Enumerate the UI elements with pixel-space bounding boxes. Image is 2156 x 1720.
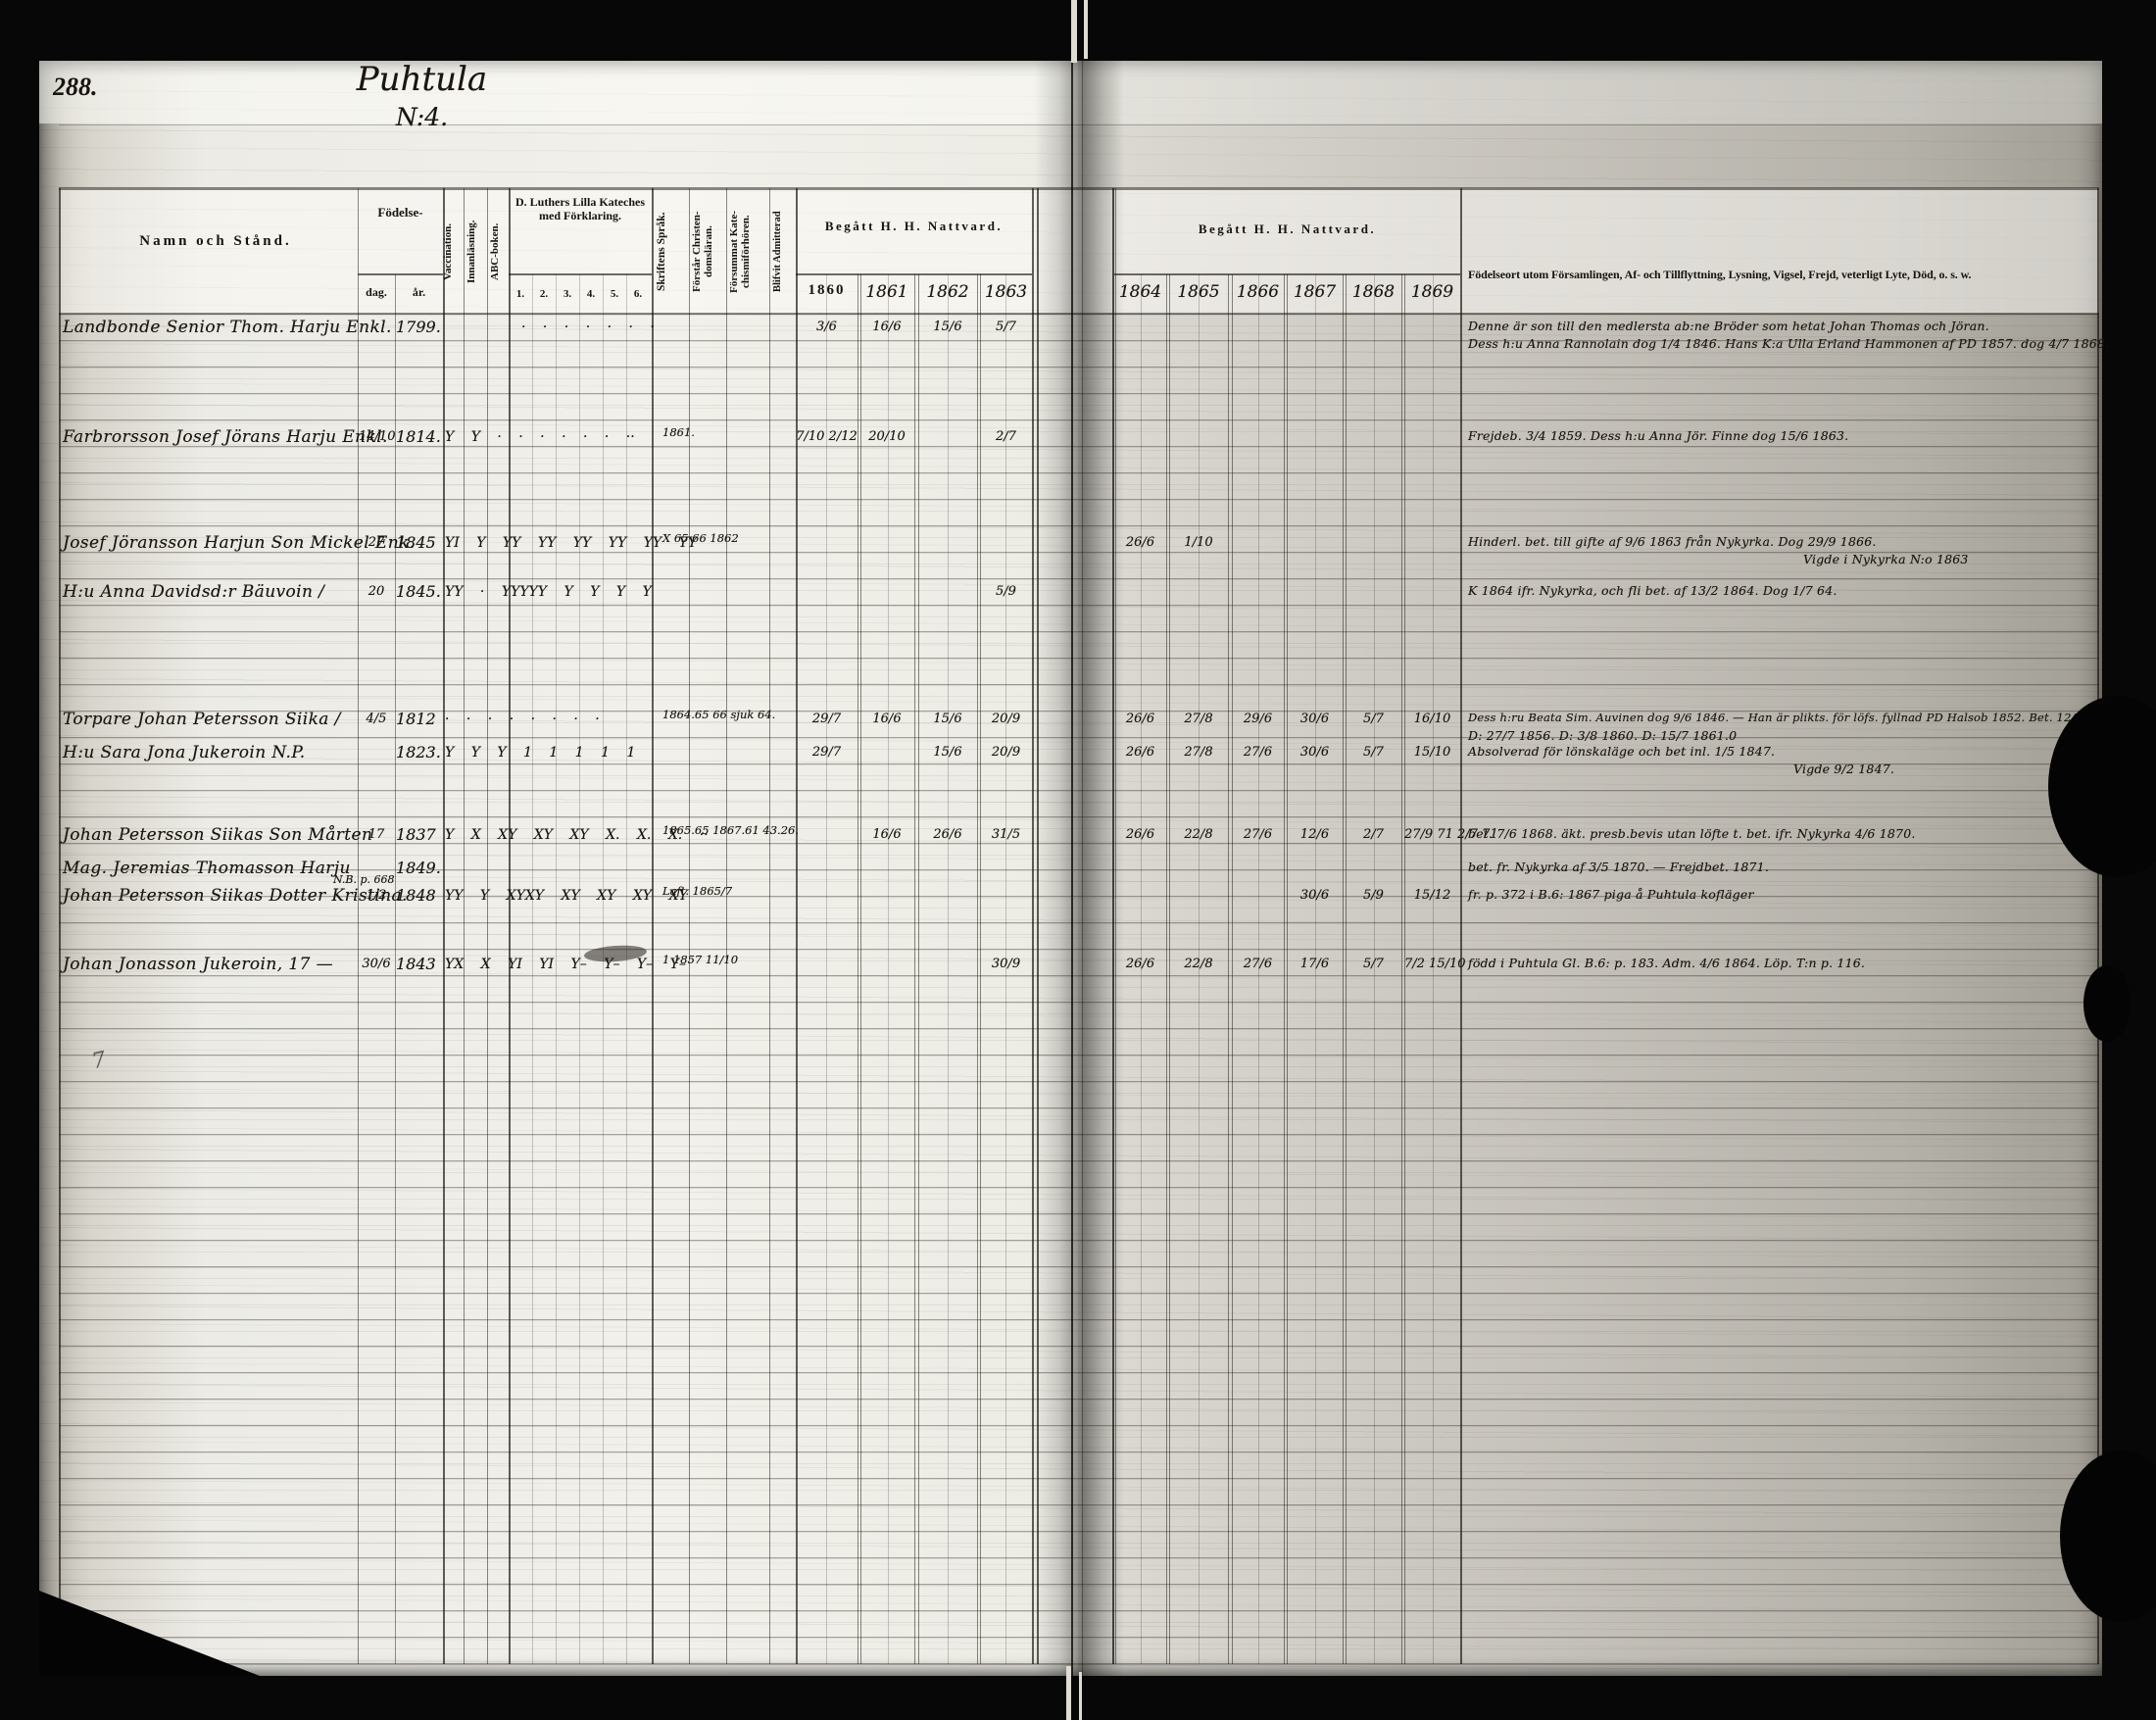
communion-1864-cell: 26/6 <box>1114 712 1166 726</box>
column-header-scripture: Skriftens Språk. <box>656 194 685 310</box>
name-and-status-cell: H:u Sara Jona Jukeroin N.P. <box>63 743 362 762</box>
communion-1867-cell: 30/6 <box>1287 712 1343 726</box>
admission-note-cell: X 65·66 1862 <box>662 532 817 546</box>
page-edge-slit <box>1084 0 1088 59</box>
remark-line-1: född i Puhtula Gl. B.6: p. 183. Adm. 4/6… <box>1468 956 2115 970</box>
fold-crease <box>1071 61 1073 1676</box>
communion-1869-cell: 7/2 15/10 <box>1404 957 1460 971</box>
remark-line-1: Dess h:ru Beata Sim. Auvinen dog 9/6 184… <box>1468 711 2115 724</box>
communion-1860-cell: 29/7 <box>796 745 857 760</box>
year-header-1860: 1860 <box>796 282 857 299</box>
birth-year-cell: 1823. <box>396 743 443 762</box>
page-edge-slit <box>1079 1672 1082 1720</box>
communion-1869-cell: 27/9 71 2/7 71 <box>1404 827 1460 842</box>
communion-1864-cell: 26/6 <box>1114 827 1166 842</box>
year-header-1868: 1868 <box>1346 282 1401 302</box>
remark-line-1: bet. 7/6 1868. äkt. presb.bevis utan löf… <box>1468 826 2115 841</box>
birth-year-cell: 1812 <box>396 710 443 728</box>
catechism-col-6: 6. <box>626 288 650 300</box>
page-edge-slit <box>1066 1666 1071 1720</box>
column-header-admitted: Blifvit Admitterad <box>772 194 795 310</box>
birth-day-cell: 17 <box>359 827 394 842</box>
communion-1862-cell: 26/6 <box>918 827 977 842</box>
year-header-1861: 1861 <box>859 282 914 302</box>
communion-1865-cell: 22/8 <box>1169 957 1228 971</box>
communion-1865-cell: 27/8 <box>1169 712 1228 726</box>
name-and-status-cell: Johan Petersson Siikas Son Mårten <box>63 825 362 845</box>
communion-1863-cell: 30/9 <box>980 957 1032 971</box>
remark-line-1: bet. fr. Nykyrka af 3/5 1870. — Frejdbet… <box>1468 860 2115 874</box>
communion-1868-cell: 5/7 <box>1346 745 1401 760</box>
communion-1864-cell: 26/6 <box>1114 745 1166 760</box>
communion-1866-cell: 29/6 <box>1232 712 1284 726</box>
name-and-status-cell: Mag. Jeremias Thomasson Harju <box>63 859 362 878</box>
remark-line-2: D: 27/7 1856. D: 3/8 1860. D: 15/7 1861.… <box>1468 728 2115 743</box>
year-header-1869: 1869 <box>1404 282 1460 302</box>
communion-1868-cell: 2/7 <box>1346 827 1401 842</box>
birth-day-cell: 4/5 <box>359 712 394 726</box>
communion-1869-cell: 15/12 <box>1404 888 1460 903</box>
birth-subheader-line <box>358 273 443 275</box>
admission-note-cell: Laft. 1865/7 <box>662 885 817 899</box>
years-left-subheader-line <box>796 273 1032 275</box>
communion-1863-cell: 20/9 <box>980 712 1032 726</box>
admission-note-cell: 1864.65 66 sjuk 64. <box>662 709 817 722</box>
remark-line-1: Denne är son till den medlersta ab:ne Br… <box>1468 319 2115 333</box>
communion-1861-cell: 16/6 <box>859 712 914 726</box>
communion-1868-cell: 5/7 <box>1346 957 1401 971</box>
year-header-1866: 1866 <box>1232 282 1284 302</box>
catechism-col-1: 1. <box>509 288 532 300</box>
paper-sheet: 288. Puhtula N:4. 7 Namn och Stånd. Föde… <box>39 61 2102 1676</box>
communion-1867-cell: 12/6 <box>1287 827 1343 842</box>
year-header-1862: 1862 <box>918 282 977 302</box>
communion-1861-cell: 16/6 <box>859 319 914 334</box>
column-header-understands: Förstår Christen-domsläran. <box>692 194 725 310</box>
catechism-col-4: 4. <box>579 288 603 300</box>
page-edge-slit <box>1071 0 1077 63</box>
column-header-birth-day: dag. <box>358 286 395 300</box>
birth-day-cell: 1/2 <box>359 888 394 903</box>
name-and-status-cell: Farbrorsson Josef Jörans Harju Enkl. <box>63 427 362 447</box>
communion-1863-cell: 5/9 <box>980 584 1032 599</box>
birth-year-cell: 1799. <box>396 318 443 336</box>
birth-year-cell: 1843 <box>396 955 443 973</box>
page-subtitle: N:4. <box>331 104 513 132</box>
communion-1869-cell: 15/10 <box>1404 745 1460 760</box>
remark-line-1: fr. p. 372 i B.6: 1867 piga å Puhtula ko… <box>1468 887 2115 902</box>
fold-crease <box>1082 61 1083 1676</box>
name-and-status-cell: Johan Petersson Siikas Dotter Kristina. <box>63 886 362 906</box>
catechism-col-5: 5. <box>603 288 626 300</box>
birth-year-cell: 1814. <box>396 427 443 446</box>
birth-day-cell: 30/6 <box>359 957 394 971</box>
name-and-status-cell: Landbonde Senior Thom. Harju Enkl. <box>63 318 362 337</box>
name-and-status-cell: Josef Jöransson Harjun Son Mickel Enk. <box>63 533 362 553</box>
column-header-missed: Försummat Kate-chismiförhören. <box>729 194 768 310</box>
scanned-page: 288. Puhtula N:4. 7 Namn och Stånd. Föde… <box>0 0 2156 1720</box>
birth-year-cell: 1845. <box>396 582 443 601</box>
communion-1868-cell: 5/7 <box>1346 712 1401 726</box>
page-number: 288. <box>53 73 98 102</box>
year-header-1863: 1863 <box>980 282 1032 302</box>
catechism-subheader-line <box>509 273 652 275</box>
communion-1863-cell: 5/7 <box>980 319 1032 334</box>
birth-day-cell: 27 <box>359 535 394 550</box>
year-header-1865: 1865 <box>1169 282 1228 302</box>
catechism-col-2: 2. <box>532 288 556 300</box>
communion-1866-cell: 27/6 <box>1232 827 1284 842</box>
communion-1867-cell: 17/6 <box>1287 957 1343 971</box>
communion-1863-cell: 31/5 <box>980 827 1032 842</box>
communion-1860-cell: 7/10 2/12 <box>796 429 857 444</box>
remark-line-2: Dess h:u Anna Rannolain dog 1/4 1846. Ha… <box>1468 336 2115 351</box>
remark-line-1: Absolverad för lönskaläge och bet inl. 1… <box>1468 744 2115 759</box>
catechism-col-3: 3. <box>556 288 579 300</box>
communion-1861-cell: 16/6 <box>859 827 914 842</box>
communion-1864-cell: 26/6 <box>1114 957 1166 971</box>
communion-1865-cell: 22/8 <box>1169 827 1228 842</box>
communion-1861-cell: 20/10 <box>859 429 914 444</box>
communion-1866-cell: 27/6 <box>1232 957 1284 971</box>
communion-1862-cell: 15/6 <box>918 319 977 334</box>
name-and-status-cell: Torpare Johan Petersson Siika / <box>63 710 362 729</box>
years-right-subheader-line <box>1114 273 1460 275</box>
column-header-remarks: Födelseort utom Församlingen, Af- och Ti… <box>1468 269 2099 282</box>
birth-year-cell: 1845 <box>396 533 443 552</box>
remark-line-1: Frejdeb. 3/4 1859. Dess h:u Anna Jör. Fi… <box>1468 428 2115 443</box>
communion-1860-cell: 29/7 <box>796 712 857 726</box>
column-header-vaccination: Vaccination. <box>443 194 464 310</box>
examination-marks-cell: Y Y Y 1 1 1 1 1 <box>445 745 794 761</box>
communion-1865-cell: 27/8 <box>1169 745 1228 760</box>
year-header-1867: 1867 <box>1287 282 1343 302</box>
birth-day-cell: 14/10 <box>359 429 394 444</box>
name-and-status-cell: Johan Jonasson Jukeroin, 17 — <box>63 955 362 974</box>
communion-1863-cell: 2/7 <box>980 429 1032 444</box>
communion-1862-cell: 15/6 <box>918 745 977 760</box>
communion-1868-cell: 5/9 <box>1346 888 1401 903</box>
column-header-communion-right: Begått H. H. Nattvard. <box>1114 222 1460 237</box>
column-header-birth: Födelse- <box>358 206 443 221</box>
column-header-birth-year: år. <box>395 286 443 300</box>
birth-year-cell: 1837 <box>396 825 443 844</box>
year-header-1864: 1864 <box>1114 282 1166 302</box>
communion-1860-cell: 3/6 <box>796 319 857 334</box>
scan-edge-blob <box>2083 965 2131 1042</box>
communion-1867-cell: 30/6 <box>1287 745 1343 760</box>
communion-1869-cell: 16/10 <box>1404 712 1460 726</box>
admission-note-cell: 1865.65 1867.61 43.26. <box>662 824 817 838</box>
communion-1866-cell: 27/6 <box>1232 745 1284 760</box>
communion-1867-cell: 30/6 <box>1287 888 1343 903</box>
admission-note-cell: N.B. p. 668 <box>333 873 451 886</box>
remark-line-2: Vigde i Nykyrka N:o 1863 <box>1803 552 2156 566</box>
column-header-catechism: D. Luthers Lilla Kateches med Förklaring… <box>511 196 650 223</box>
examination-marks-cell: YY · YYYYY Y Y Y Y <box>445 584 794 600</box>
column-header-abc-book: ABC-boken. <box>490 194 509 310</box>
name-and-status-cell: H:u Anna Davidsd:r Bäuvoin / <box>63 582 362 602</box>
column-header-name: Namn och Stånd. <box>78 233 353 250</box>
center-fold-shadow <box>1034 61 1124 1676</box>
admission-note-cell: 1 1857 11/10 <box>662 954 817 967</box>
communion-1863-cell: 20/9 <box>980 745 1032 760</box>
communion-1862-cell: 15/6 <box>918 712 977 726</box>
column-header-reading: Innanläsning. <box>466 194 487 310</box>
communion-1864-cell: 26/6 <box>1114 535 1166 550</box>
page-title: Puhtula <box>331 61 513 99</box>
birth-day-cell: 20 <box>359 584 394 599</box>
remark-line-1: Hinderl. bet. till gifte af 9/6 1863 frå… <box>1468 534 2115 549</box>
column-header-communion-left: Begått H. H. Nattvard. <box>796 220 1032 234</box>
remark-line-1: K 1864 ifr. Nykyrka, och fli bet. af 13/… <box>1468 583 2115 598</box>
admission-note-cell: 1861. <box>662 426 817 440</box>
birth-year-cell: 1848 <box>396 886 443 905</box>
communion-1865-cell: 1/10 <box>1169 535 1228 550</box>
